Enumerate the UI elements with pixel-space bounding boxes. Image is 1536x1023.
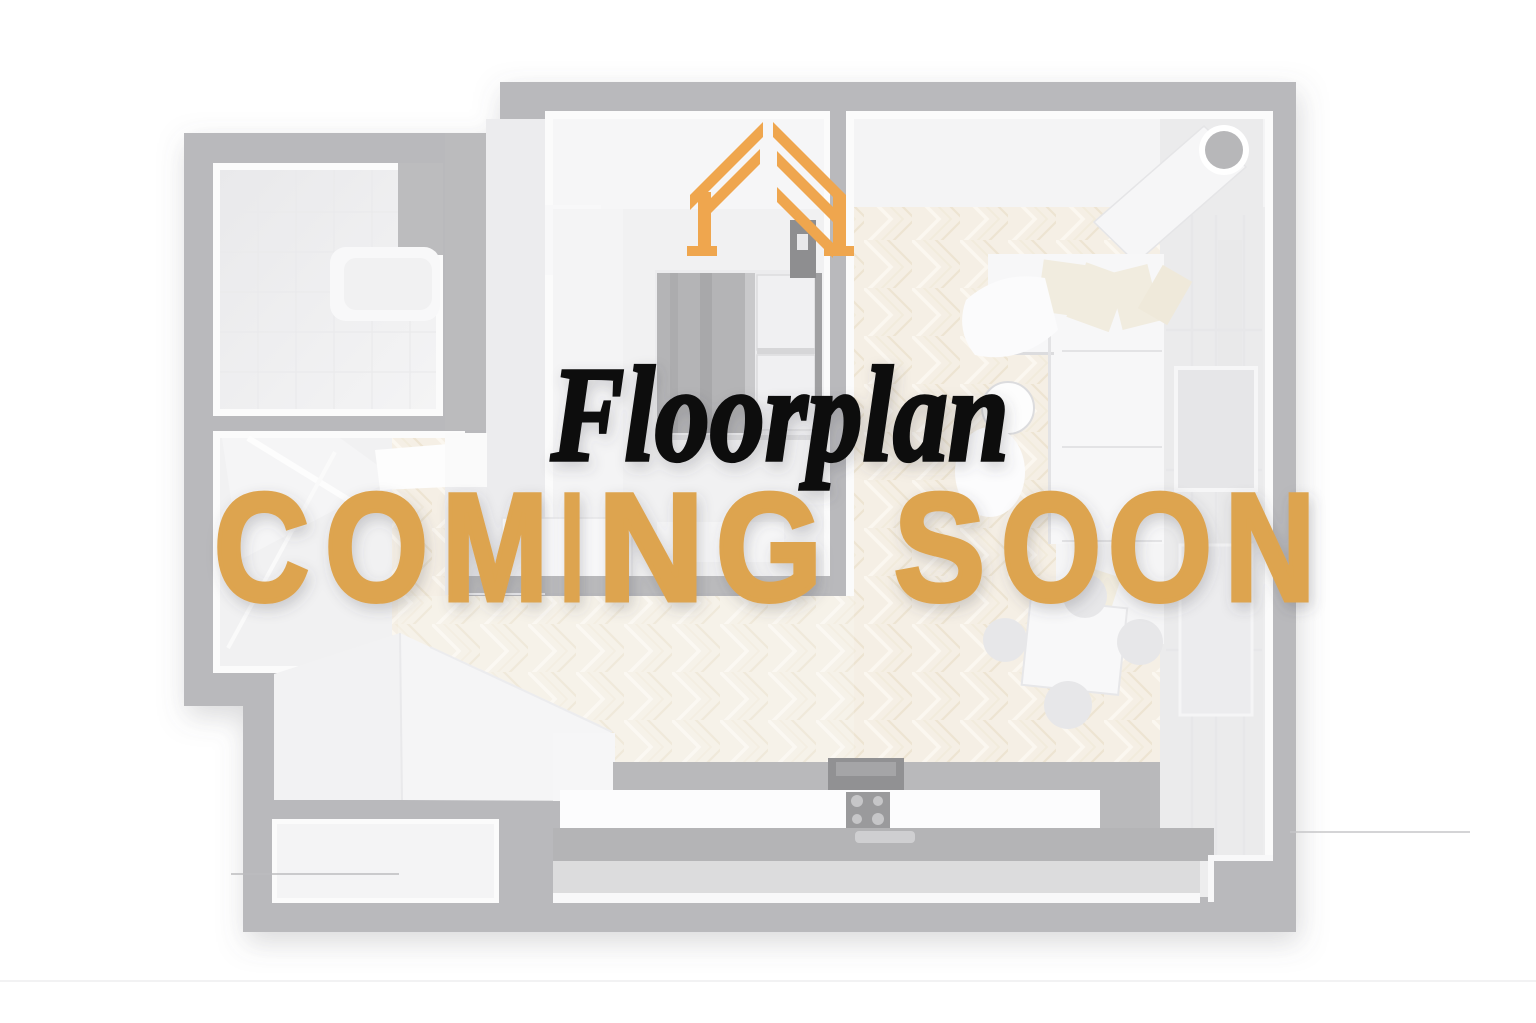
svg-text:N: N (1225, 462, 1315, 633)
svg-text:I: I (560, 462, 584, 633)
svg-text:O: O (1001, 462, 1101, 633)
svg-text:O: O (325, 462, 428, 633)
svg-text:C: C (214, 462, 309, 633)
svg-text:O: O (1108, 462, 1212, 633)
svg-text:G: G (716, 462, 822, 633)
svg-text:M: M (442, 462, 548, 633)
svg-text:N: N (598, 462, 704, 633)
svg-text:S: S (894, 462, 985, 633)
